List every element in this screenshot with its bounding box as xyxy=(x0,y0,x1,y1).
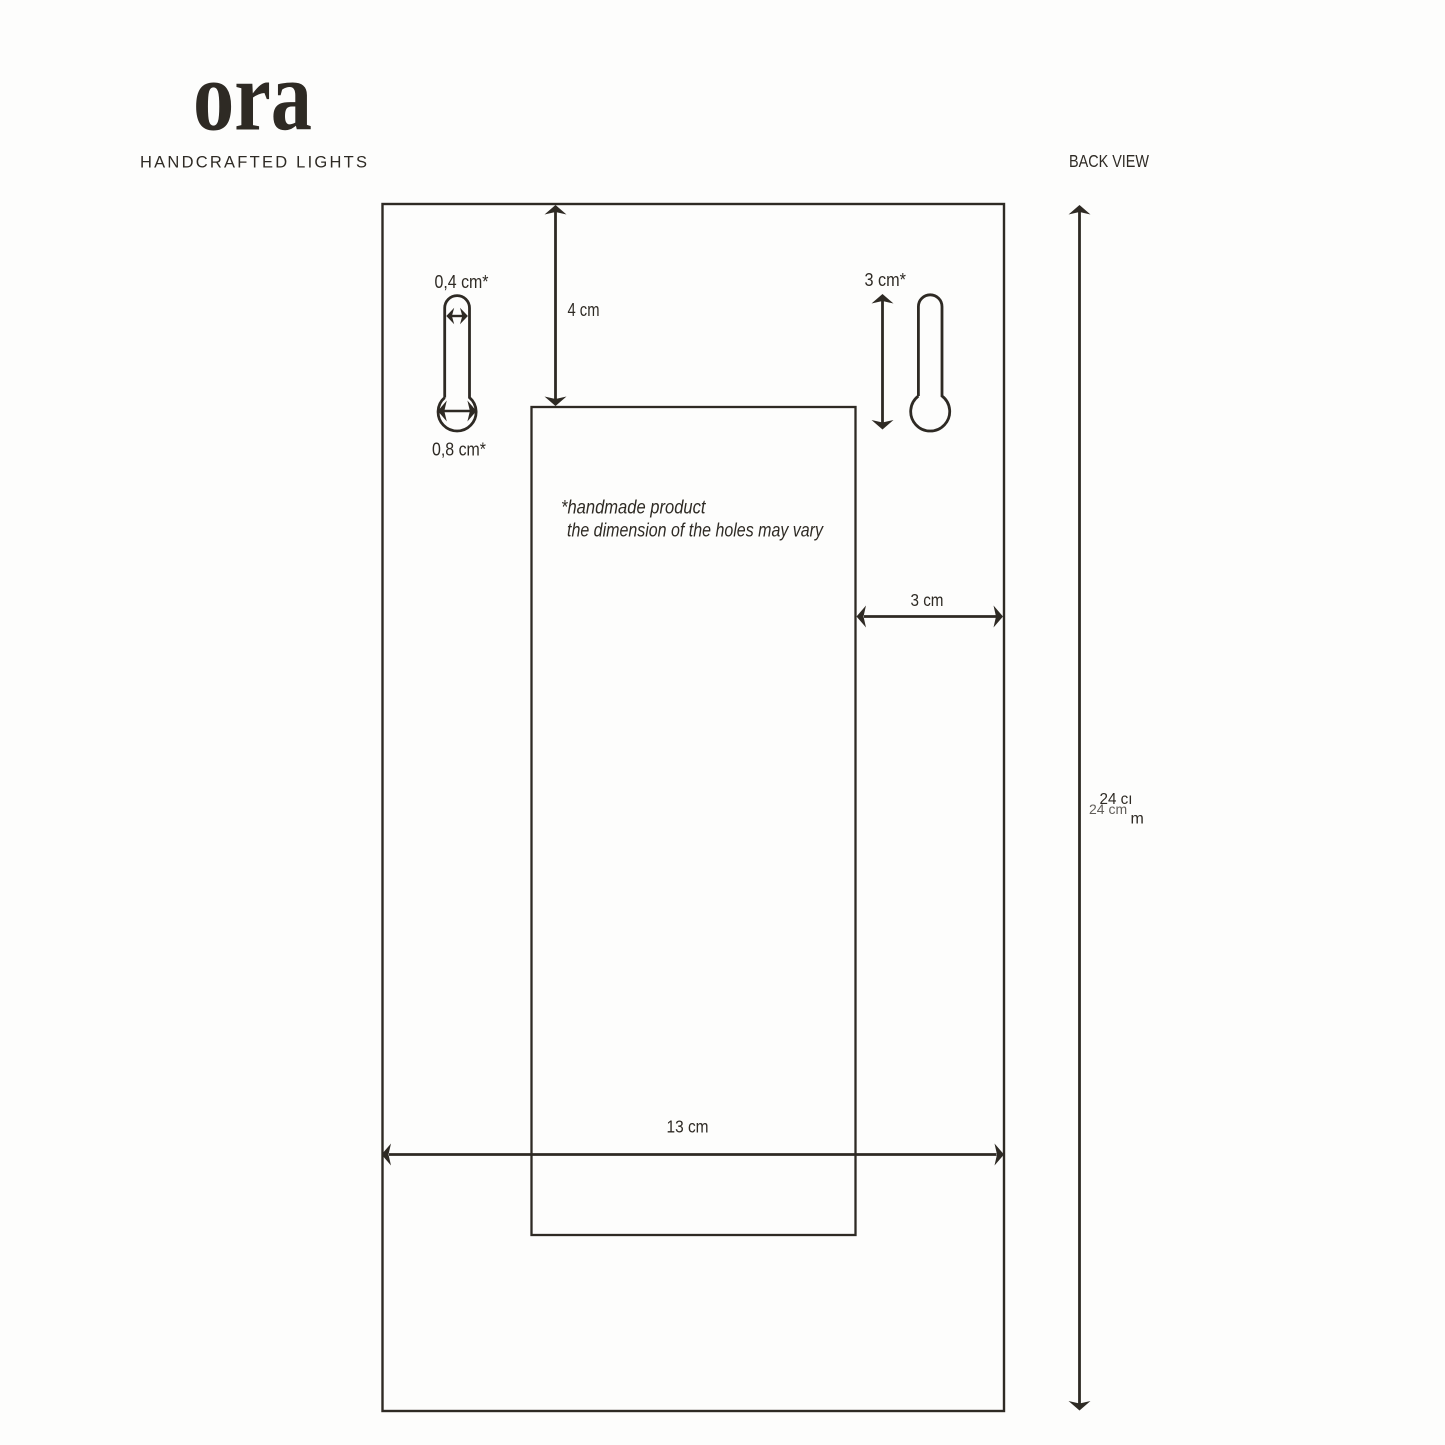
svg-text:ora: ora xyxy=(193,41,312,152)
svg-text:the dimension of the holes may: the dimension of the holes may vary xyxy=(567,521,824,542)
svg-text:BACK VIEW: BACK VIEW xyxy=(1069,151,1149,171)
svg-text:0,8 cm*: 0,8 cm* xyxy=(432,439,486,460)
svg-text:HANDCRAFTED LIGHTS: HANDCRAFTED LIGHTS xyxy=(140,154,367,172)
svg-text:m: m xyxy=(1131,811,1144,828)
svg-text:3 cm*: 3 cm* xyxy=(865,269,907,290)
svg-text:0,4 cm*: 0,4 cm* xyxy=(435,271,489,292)
svg-text:4 cm: 4 cm xyxy=(568,300,600,320)
svg-text:3 cm: 3 cm xyxy=(911,590,944,610)
svg-text:13 cm: 13 cm xyxy=(667,1117,709,1137)
svg-text:24 cı: 24 cı xyxy=(1100,791,1133,808)
svg-text:*handmade product: *handmade product xyxy=(561,498,706,519)
